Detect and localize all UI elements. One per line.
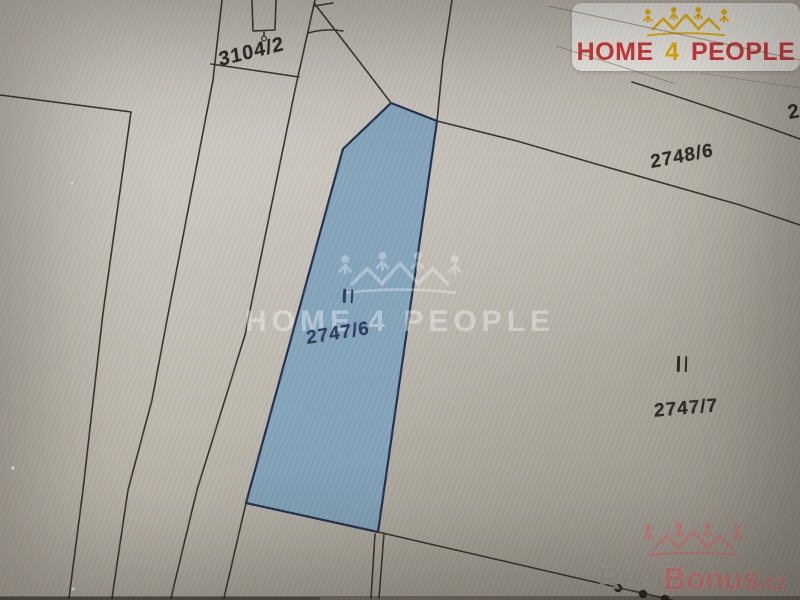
flag-strip-outline [252,0,276,35]
dotted-boundary-line [378,532,672,600]
highlighted-parcel-2747-6 [246,103,437,532]
boundary-2748-top [632,82,800,139]
logo-four: 4 [661,38,683,66]
parcel-boundary-left-a [0,95,131,598]
cadastral-map-canvas [0,0,800,600]
apex-left-line [314,3,391,103]
grassland-symbol-2747-6 [343,289,354,304]
houses-people-icon [638,7,734,39]
logo-people: PEOPLE [691,38,795,66]
agency-logo-text: HOME 4 PEOPLE [572,38,800,67]
parcel-boundary-left-b [112,0,222,598]
boundary-below-strip [371,533,384,598]
boundary-below-left [224,503,246,598]
cadastral-map-photo: HOME 4 PEOPLE 3104/2 2748/6 2747/6 2747/… [0,0,800,600]
boundary-2748-bottom [391,103,800,225]
apex-right-line [437,0,452,121]
logo-home: HOME [577,38,654,66]
agency-logo-panel: HOME 4 PEOPLE [572,3,800,71]
grassland-symbol-2747-7 [677,356,688,372]
